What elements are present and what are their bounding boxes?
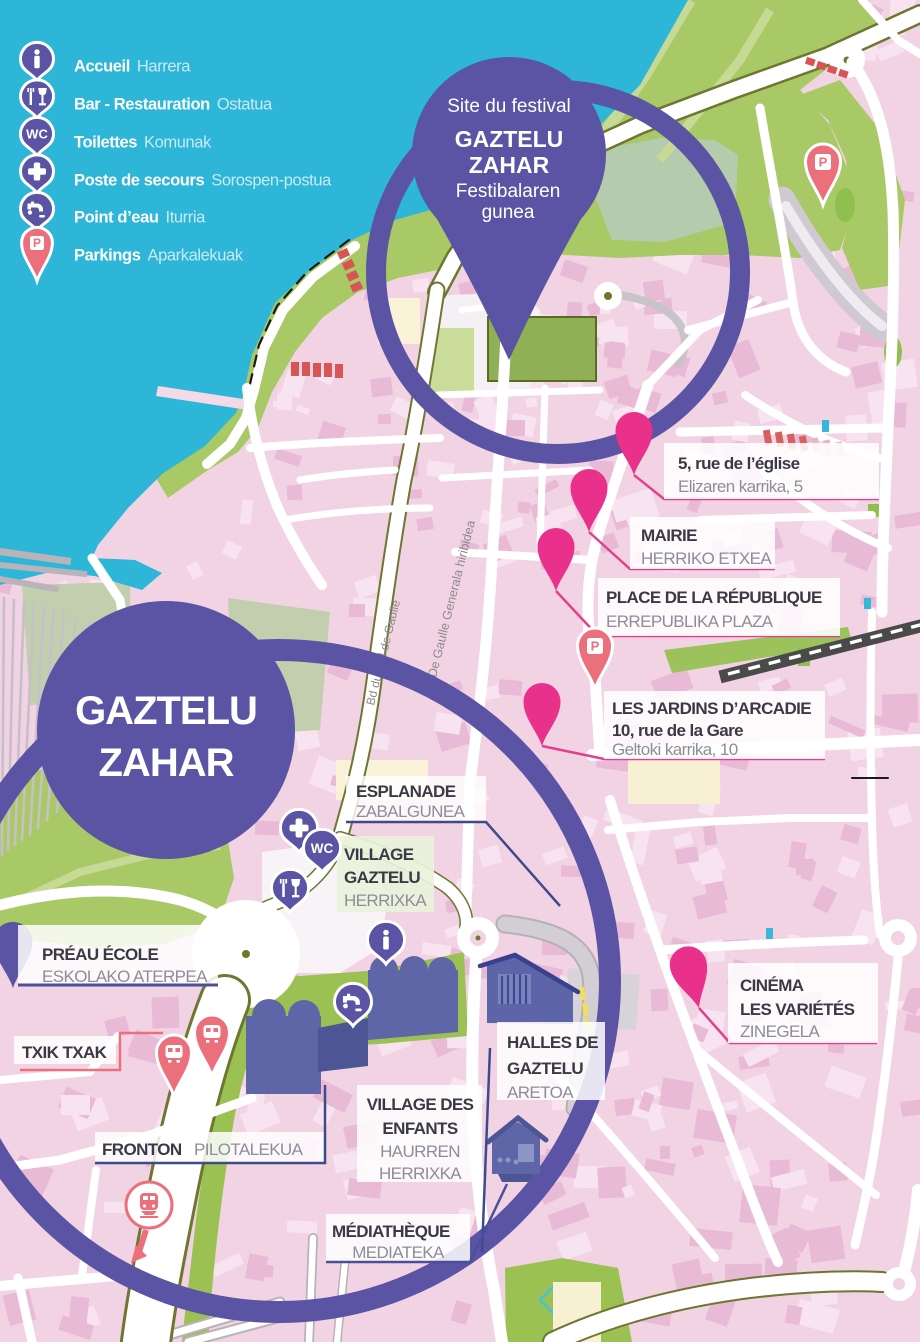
svg-text:ParkingsAparkalekuak: ParkingsAparkalekuak (74, 247, 244, 265)
svg-text:VILLAGE DES: VILLAGE DES (367, 1095, 474, 1114)
svg-text:Festibalaren: Festibalaren (456, 181, 561, 202)
svg-text:MÉDIATHÈQUE: MÉDIATHÈQUE (332, 1222, 450, 1241)
svg-text:P: P (819, 155, 828, 170)
svg-text:Elizaren karrika, 5: Elizaren karrika, 5 (678, 477, 803, 496)
svg-text:MAIRIE: MAIRIE (641, 526, 697, 545)
svg-text:CINÉMA: CINÉMA (740, 976, 804, 995)
svg-text:Site du festival: Site du festival (447, 96, 571, 117)
svg-text:PRÉAU ÉCOLE: PRÉAU ÉCOLE (42, 945, 158, 964)
svg-text:10, rue de la Gare: 10, rue de la Gare (612, 721, 743, 740)
svg-text:Point d’eauIturria: Point d’eauIturria (74, 209, 206, 227)
svg-text:ZAHAR: ZAHAR (99, 741, 235, 785)
svg-text:ERREPUBLIKA PLAZA: ERREPUBLIKA PLAZA (606, 612, 774, 631)
svg-text:Geltoki karrika, 10: Geltoki karrika, 10 (612, 740, 738, 759)
svg-text:ZINEGELA: ZINEGELA (740, 1022, 821, 1041)
svg-text:PILOTALEKUA: PILOTALEKUA (194, 1140, 304, 1159)
svg-text:P: P (33, 236, 41, 250)
svg-text:FRONTON: FRONTON (102, 1140, 182, 1159)
svg-text:WC: WC (311, 841, 334, 856)
svg-text:WC: WC (26, 127, 48, 142)
svg-text:ENFANTS: ENFANTS (382, 1119, 457, 1138)
svg-text:P: P (591, 639, 600, 654)
svg-text:gunea: gunea (482, 202, 535, 223)
svg-text:ARETOA: ARETOA (507, 1083, 574, 1102)
svg-text:Bar - RestaurationOstatua: Bar - RestaurationOstatua (74, 96, 273, 114)
svg-text:Poste de secoursSorospen-postu: Poste de secoursSorospen-postua (74, 172, 332, 190)
svg-text:ESKOLAKO ATERPEA: ESKOLAKO ATERPEA (42, 967, 208, 986)
svg-text:LES JARDINS D’ARCADIE: LES JARDINS D’ARCADIE (612, 699, 811, 718)
svg-text:ZABALGUNEA: ZABALGUNEA (356, 802, 466, 821)
svg-text:ZAHAR: ZAHAR (469, 152, 550, 178)
svg-text:ESPLANADE: ESPLANADE (356, 782, 456, 801)
svg-text:GAZTELU: GAZTELU (75, 689, 257, 733)
svg-text:PLACE DE LA RÉPUBLIQUE: PLACE DE LA RÉPUBLIQUE (606, 588, 822, 607)
svg-text:MEDIATEKA: MEDIATEKA (352, 1243, 445, 1262)
svg-text:GAZTELU: GAZTELU (507, 1059, 583, 1078)
svg-text:GAZTELU: GAZTELU (455, 126, 564, 152)
svg-text:GAZTELU: GAZTELU (344, 868, 420, 887)
svg-text:HERRIXKA: HERRIXKA (344, 891, 427, 910)
svg-text:HALLES DE: HALLES DE (507, 1033, 598, 1052)
svg-text:HERRIXKA: HERRIXKA (379, 1164, 462, 1183)
svg-text:TXIK TXAK: TXIK TXAK (22, 1043, 108, 1062)
svg-text:LES VARIÉTÉS: LES VARIÉTÉS (740, 1000, 855, 1019)
svg-text:VILLAGE: VILLAGE (344, 845, 414, 864)
svg-text:5, rue de l’église: 5, rue de l’église (678, 454, 800, 473)
svg-text:HAURREN: HAURREN (380, 1142, 460, 1161)
svg-text:HERRIKO ETXEA: HERRIKO ETXEA (641, 549, 772, 568)
